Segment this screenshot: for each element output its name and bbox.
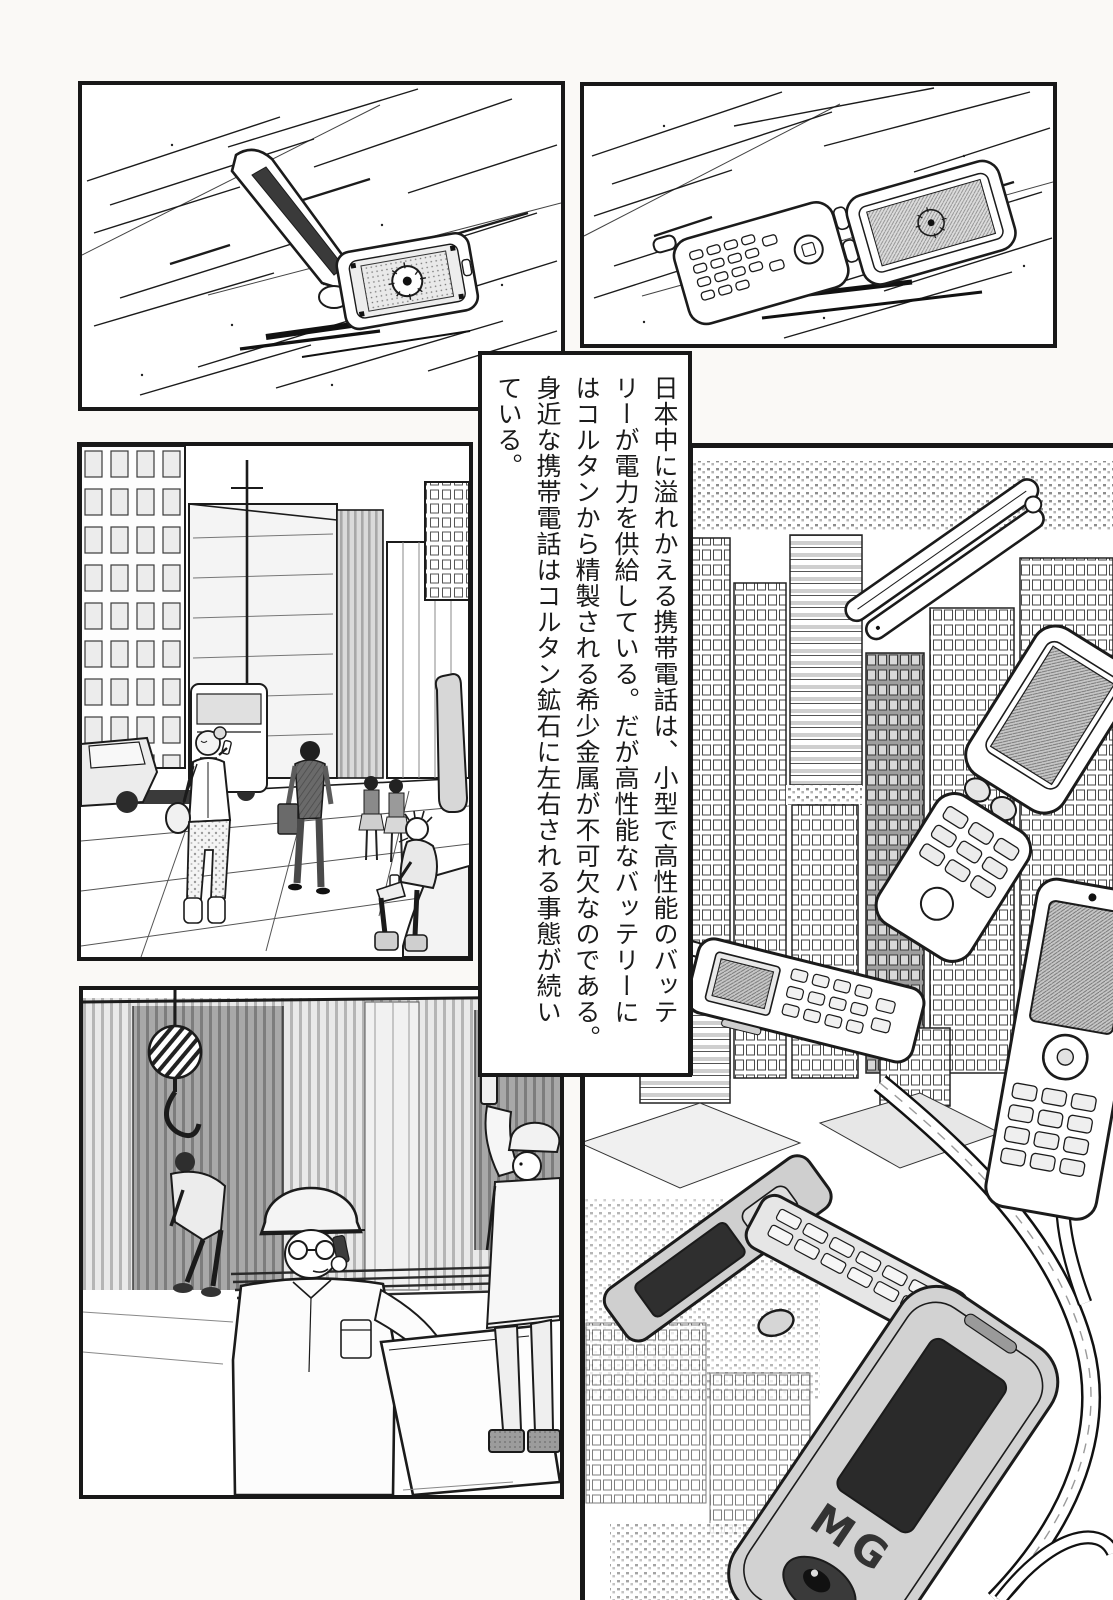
narration-column: はコルタンから精製される希少金属が不可欠なのである。 <box>566 375 605 1055</box>
phone-base-half <box>335 231 481 331</box>
schoolgirls-figures <box>359 776 409 862</box>
narration-column: リーが電力を供給している。だが高性能なバッテリーに <box>605 375 644 1055</box>
phone-screen-half <box>232 150 354 291</box>
phone-body <box>652 143 1020 342</box>
panel-top-right <box>580 82 1057 348</box>
background-buildings <box>81 446 469 782</box>
street-scene-art <box>81 446 469 957</box>
narration-text: 日本中に溢れかえる携帯電話は、小型で高性能のバッテ リーが電力を供給している。だ… <box>482 355 692 1073</box>
panel-street <box>77 442 473 961</box>
narration-column: 身近な携帯電話はコルタン鉱石に左右される事態が続い <box>527 375 566 1055</box>
flip-phone-open-flat-icon <box>584 86 1053 344</box>
narration-column: ている。 <box>488 375 527 1055</box>
narration-box: 日本中に溢れかえる携帯電話は、小型で高性能のバッテ リーが電力を供給している。だ… <box>478 351 692 1077</box>
narration-column: 日本中に溢れかえる携帯電話は、小型で高性能のバッテ <box>644 375 683 1055</box>
manga-page: MG 日本中に溢れかえる携帯電話は、小型で高性能のバッテ リーが電力を供給してい… <box>0 0 1113 1600</box>
